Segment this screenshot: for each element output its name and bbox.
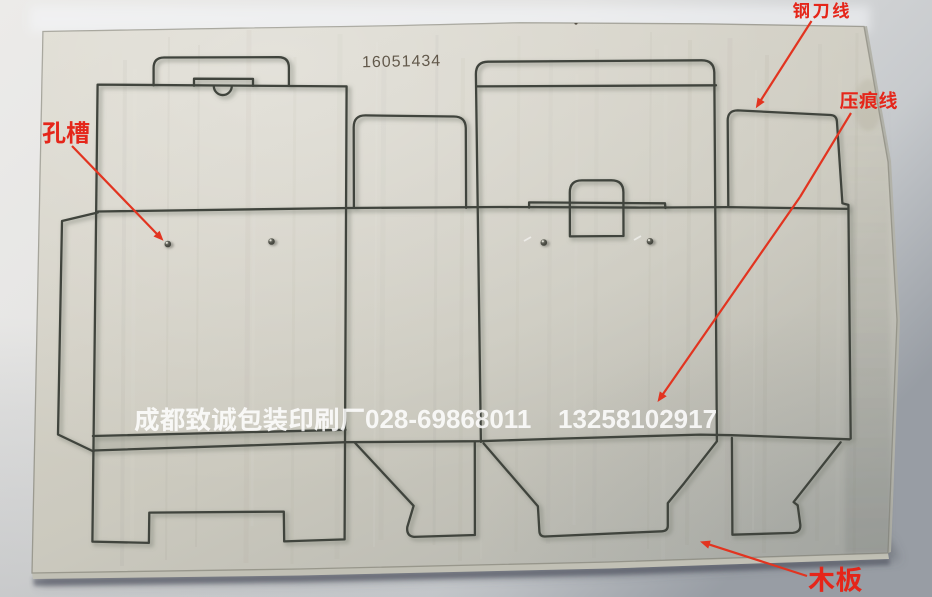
svg-text:16051434: 16051434 xyxy=(362,53,442,72)
svg-text:028-69868011: 028-69868011 xyxy=(365,404,531,434)
svg-text:13258102917: 13258102917 xyxy=(558,404,717,434)
